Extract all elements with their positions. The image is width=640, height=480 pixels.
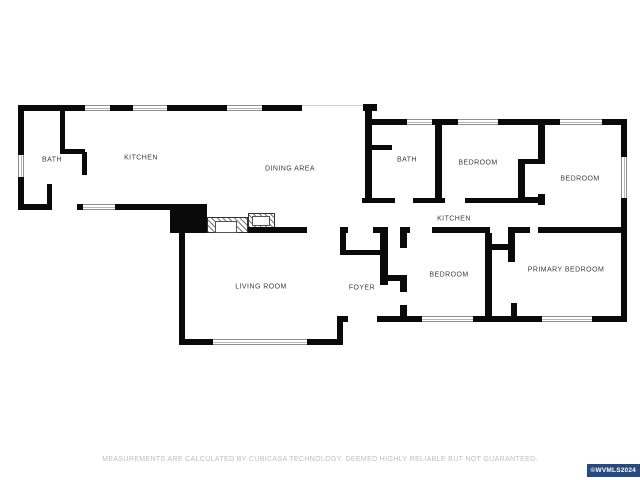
wall — [368, 145, 392, 150]
room-label-bedroom-top: BEDROOM — [458, 160, 497, 167]
wall — [362, 198, 395, 203]
room-label-bath-right: BATH — [397, 157, 417, 164]
window — [407, 119, 432, 125]
wall — [18, 105, 24, 155]
wall — [508, 233, 515, 262]
wall — [538, 194, 545, 205]
wall — [400, 305, 407, 316]
room-label-bath-left: BATH — [42, 157, 62, 164]
wall — [413, 198, 445, 203]
wall — [377, 316, 422, 322]
wall — [110, 105, 133, 111]
wall — [340, 250, 385, 255]
wall — [518, 164, 525, 197]
fireplace-firebox — [252, 216, 270, 226]
window — [85, 105, 110, 111]
fireplace-chimney — [170, 204, 207, 233]
room-label-foyer: FOYER — [349, 285, 375, 292]
wall — [400, 281, 407, 292]
wall — [47, 184, 52, 205]
window — [227, 105, 262, 111]
room-label-bedroom-bottom: BEDROOM — [429, 272, 468, 279]
wall — [368, 119, 407, 125]
wall — [602, 119, 627, 125]
room-label-dining-area: DINING AREA — [265, 166, 315, 173]
window — [458, 119, 498, 125]
wall — [432, 227, 490, 233]
mls-badge: ©WVMLS2024 — [587, 464, 640, 477]
wall — [511, 303, 517, 316]
wall — [115, 204, 171, 210]
window — [133, 105, 167, 111]
room-label-primary-bedroom: PRIMARY BEDROOM — [528, 267, 605, 274]
wall — [538, 125, 545, 163]
room-label-kitchen-right: KITCHEN — [437, 216, 471, 223]
wall — [18, 105, 85, 111]
wall-opening — [302, 105, 363, 106]
wall — [179, 233, 185, 340]
room-label-bedroom-right: BEDROOM — [560, 176, 599, 183]
wall — [621, 198, 627, 322]
wall — [365, 104, 372, 203]
window — [621, 157, 627, 198]
wall — [179, 339, 213, 345]
room-label-kitchen-left: KITCHEN — [124, 155, 158, 162]
wall — [435, 125, 442, 198]
wall — [82, 152, 87, 175]
fireplace-firebox — [215, 221, 237, 233]
window — [542, 316, 592, 322]
wall — [485, 233, 492, 316]
wall — [60, 111, 65, 152]
floor-plan: BATH KITCHEN DINING AREA BATH BEDROOM BE… — [0, 0, 640, 480]
wall — [538, 227, 627, 233]
wall — [498, 119, 560, 125]
room-label-living-room: LIVING ROOM — [235, 284, 287, 291]
window — [18, 155, 24, 177]
window — [213, 339, 307, 345]
wall — [400, 227, 407, 248]
wall — [473, 316, 542, 322]
wall — [337, 316, 348, 322]
wall — [337, 321, 343, 345]
wall — [248, 227, 307, 233]
wall — [262, 105, 302, 111]
wall — [167, 105, 227, 111]
window — [422, 316, 473, 322]
window — [83, 204, 115, 210]
window — [560, 119, 602, 125]
wall — [465, 198, 518, 203]
disclaimer-text: MEASUREMENTS ARE CALCULATED BY CUBICASA … — [0, 456, 640, 463]
